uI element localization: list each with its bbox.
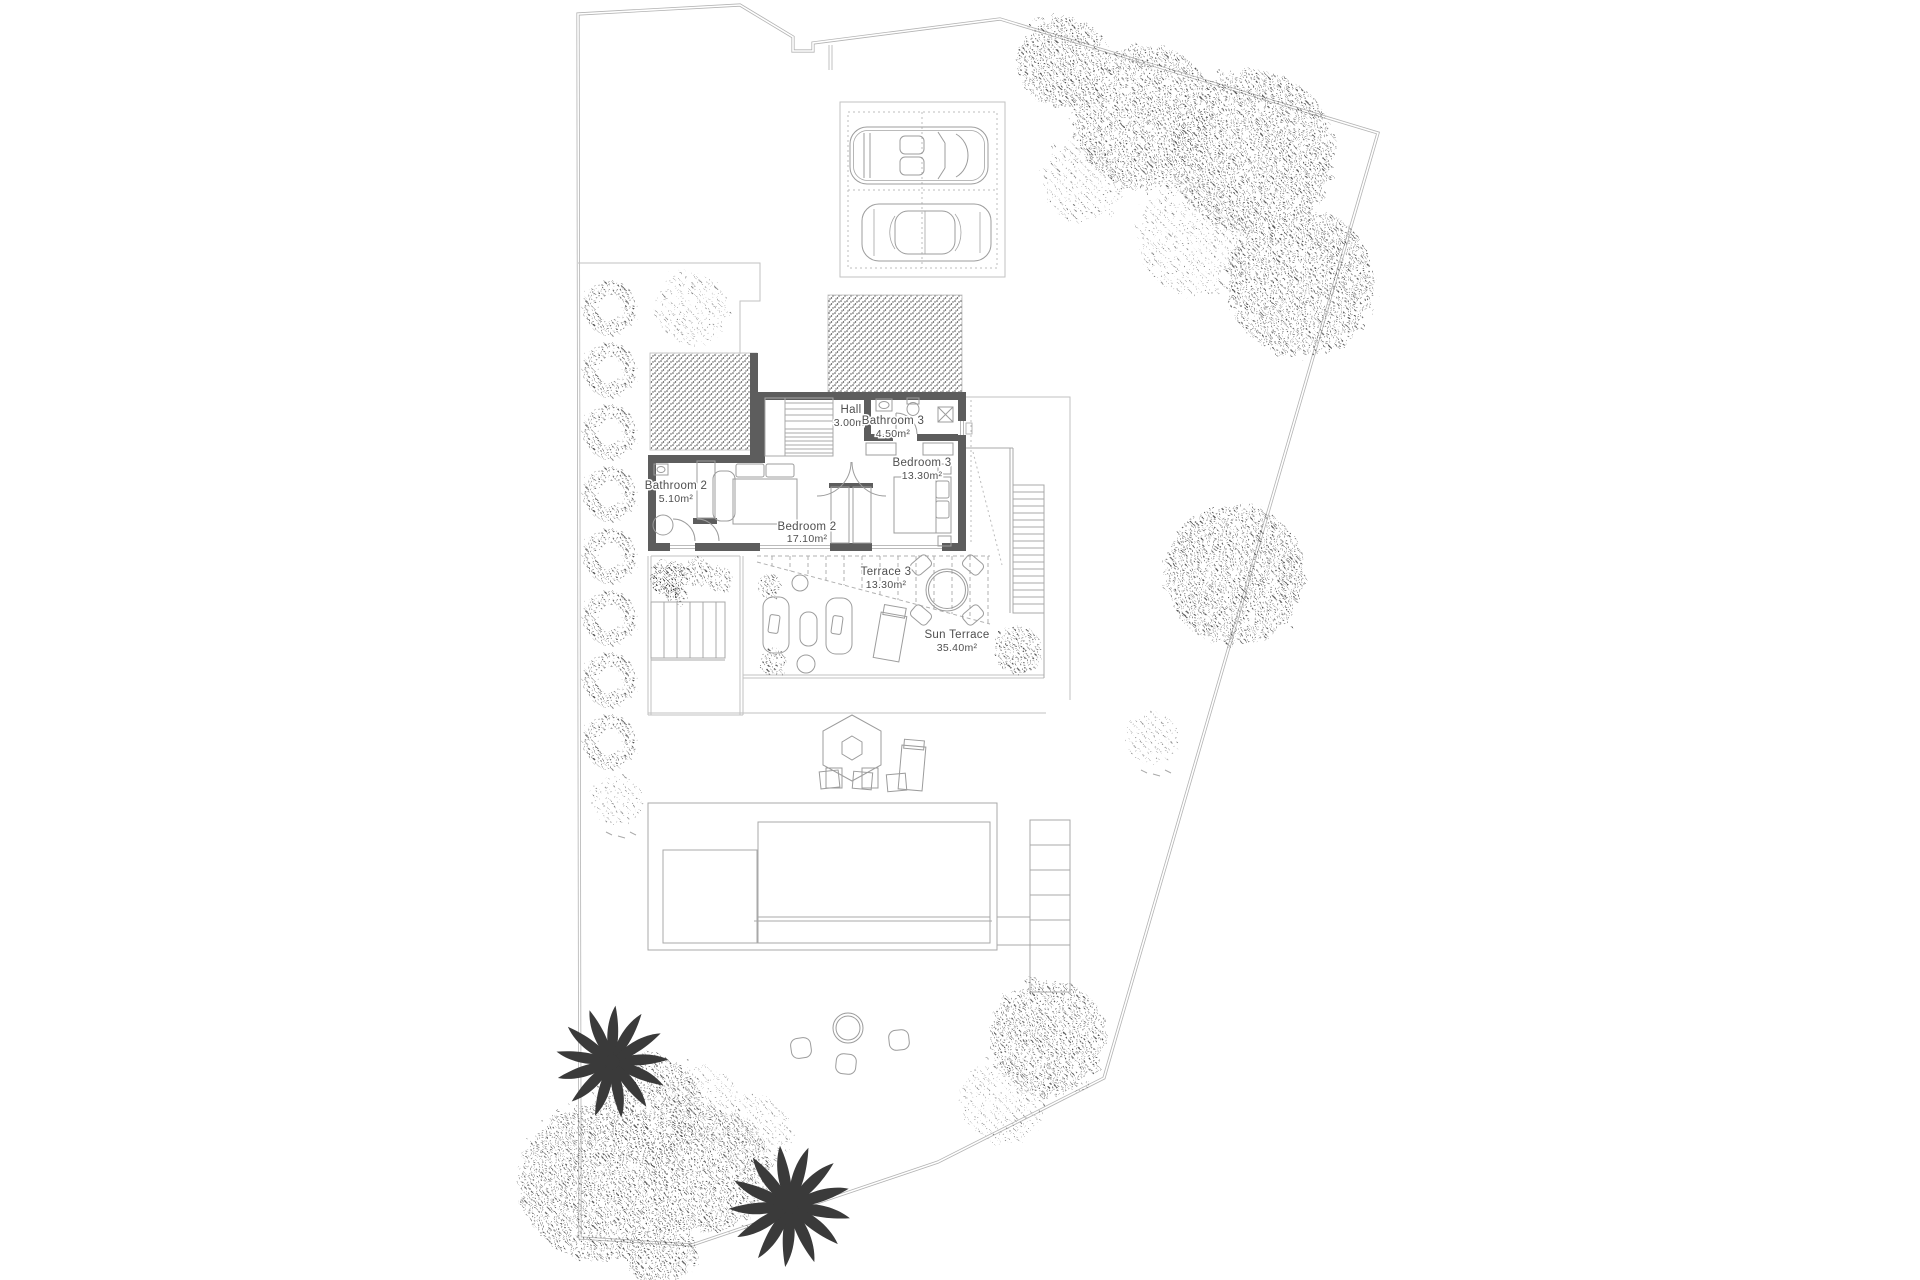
green-roof-top (828, 295, 962, 398)
label-terrace3-area: 13.30m² (866, 579, 907, 591)
label-sun-terrace-name: Sun Terrace (924, 629, 989, 641)
sink-icon (876, 399, 892, 411)
garden-steps (997, 820, 1070, 992)
tree-driveway (656, 272, 728, 344)
planter-bushes (650, 557, 733, 605)
label-bathroom3-area: 4.50m² (876, 428, 911, 440)
label-bathroom2-area: 5.10m² (659, 493, 694, 505)
side-table-round-1 (792, 575, 808, 591)
stepping-stones-garden (790, 1013, 910, 1075)
label-bathroom2-name: Bathroom 2 (645, 480, 707, 492)
deck-slats (651, 602, 725, 660)
pool-overflow-lines (754, 917, 992, 921)
tree-grove-top-right (1017, 16, 1374, 356)
garden-lounger (898, 739, 926, 791)
garden-furniture (790, 715, 927, 1075)
side-table-round-2 (797, 655, 815, 673)
label-sun-terrace-area: 35.40m² (937, 642, 978, 654)
side-table-oval (800, 612, 817, 646)
terrace-slab-edges (648, 675, 1046, 713)
shrub-left (591, 774, 643, 838)
pool-deck-inner-square (663, 850, 757, 943)
floor-plan-page: Hall 3.00m² Bathroom 3 4.50m² Bedroom 3 … (0, 0, 1920, 1280)
carport (840, 102, 1005, 277)
external-staircase (1013, 485, 1044, 613)
pool-area (648, 770, 1070, 992)
garden-bottom-left (520, 1005, 864, 1280)
label-bedroom3-area: 13.30m² (902, 470, 943, 482)
tilted-lounger (873, 604, 908, 662)
label-terrace3-name: Terrace 3 (861, 566, 912, 578)
hedge-bush-column (583, 281, 637, 769)
car-sedan (862, 204, 991, 261)
green-roof-left (650, 353, 757, 450)
sink-icon (654, 464, 668, 475)
shrub-mid-right (1126, 712, 1178, 776)
roof-projection-dashes (971, 400, 1002, 565)
gate-post (829, 45, 832, 70)
label-hall-name: Hall (840, 404, 861, 416)
bed (894, 477, 951, 533)
swimming-pool (758, 822, 990, 943)
bedside-bench (713, 471, 735, 521)
pool-deck (648, 803, 997, 950)
internal-staircase (765, 398, 833, 456)
tree-mid-right (1165, 505, 1305, 645)
label-bedroom2-area: 17.10m² (787, 533, 828, 545)
bed (733, 479, 797, 524)
label-bathroom3-name: Bathroom 3 (862, 415, 924, 427)
car-convertible (850, 127, 988, 184)
dining-set (909, 553, 985, 627)
trees-bottom-right (960, 980, 1106, 1144)
door-arc (673, 519, 695, 541)
site-plan-drawing: Hall 3.00m² Bathroom 3 4.50m² Bedroom 3 … (0, 0, 1920, 1280)
window-box (966, 423, 972, 434)
label-bedroom2-name: Bedroom 2 (778, 521, 837, 533)
double-door (817, 462, 886, 496)
label-bedroom3-name: Bedroom 3 (893, 457, 952, 469)
